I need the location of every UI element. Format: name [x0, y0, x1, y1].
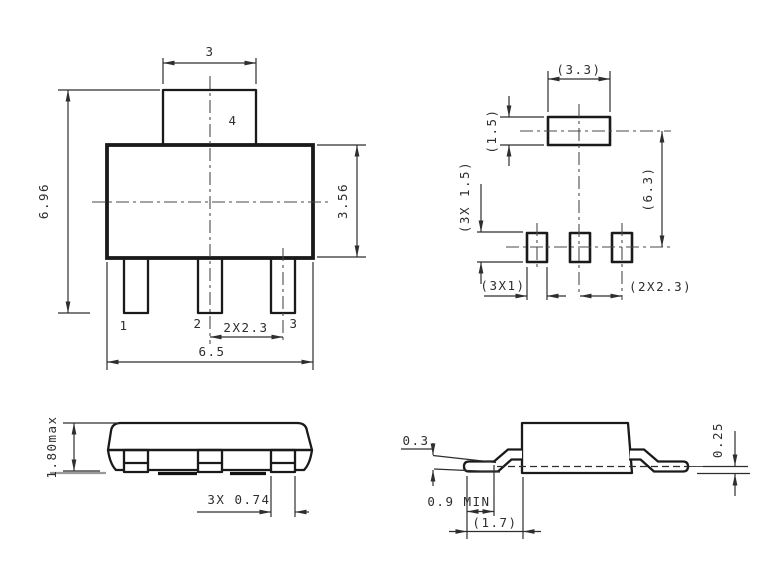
dim-pad-width-label: (3X1) [480, 278, 525, 293]
side-body-top [108, 423, 312, 450]
profile-body [522, 423, 632, 473]
dim-body-height: 3.56 [317, 145, 366, 257]
dim-foot-length-label: 0.9 MIN [427, 494, 490, 509]
dim-standoff-label: 0.25 [710, 422, 725, 458]
dim-tab-pad-height-label: (1.5) [484, 108, 499, 153]
side-view: 1.80max 3X 0.74 [44, 415, 312, 517]
package-outline-drawing: 3 4 6.96 3.56 1 2 3 2X2.3 6.5 [0, 0, 780, 583]
dim-lead-length-label: (1.7) [472, 515, 517, 530]
land-pattern-view: (3.3) (1.5) (3X 1.5) (6.3) (3X1) (2X2. [457, 62, 692, 300]
dim-pad-height: (3X 1.5) [457, 161, 523, 284]
dim-tab-width-label: 3 [205, 44, 214, 59]
front-view: 3 4 6.96 3.56 1 2 3 2X2.3 6.5 [36, 44, 366, 370]
side-pin-3 [271, 450, 295, 472]
dim-body-width-label: 6.5 [198, 344, 225, 359]
dim-pin-pitch: 2X2.3 [210, 320, 283, 337]
dim-tab-pad-height: (1.5) [484, 96, 544, 166]
dim-pad-height-label: (3X 1.5) [457, 161, 472, 233]
lead-profile-view: 0.3 0.25 0.9 MIN (1.7) [401, 422, 750, 539]
pin2-label: 2 [193, 316, 202, 331]
drawing-canvas: 3 4 6.96 3.56 1 2 3 2X2.3 6.5 [0, 0, 780, 583]
dim-body-height-label: 3.56 [335, 183, 350, 219]
dim-lead-thickness: 0.3 [401, 433, 500, 486]
side-pin-2 [198, 450, 222, 472]
dim-overall-height-label: 6.96 [36, 183, 51, 219]
dim-package-height-label: 1.80max [44, 415, 59, 478]
front-pin-1 [124, 258, 148, 313]
pin1-label: 1 [119, 318, 128, 333]
dim-pad-pitch-label: (2X2.3) [629, 279, 692, 294]
pin4-label: 4 [228, 113, 237, 128]
dim-overall-span: (6.3) [640, 131, 662, 247]
pin3-label: 3 [289, 316, 298, 331]
side-flange-left [108, 450, 124, 470]
side-pin-1 [124, 450, 148, 472]
dim-lead-width: 3X 0.74 [197, 476, 309, 517]
dim-standoff: 0.25 [697, 422, 750, 496]
side-flange-right [295, 450, 312, 470]
dim-pad-pitch: (2X2.3) [580, 279, 692, 296]
dim-pad-width: (3X1) [480, 267, 566, 300]
dim-overall-span-label: (6.3) [640, 166, 655, 211]
profile-lead-right [630, 450, 688, 472]
dim-pin-pitch-label: 2X2.3 [223, 320, 268, 335]
dim-lead-width-label: 3X 0.74 [207, 492, 270, 507]
dim-tab-pad-width-label: (3.3) [556, 62, 601, 77]
dim-lead-thickness-label: 0.3 [402, 433, 429, 448]
